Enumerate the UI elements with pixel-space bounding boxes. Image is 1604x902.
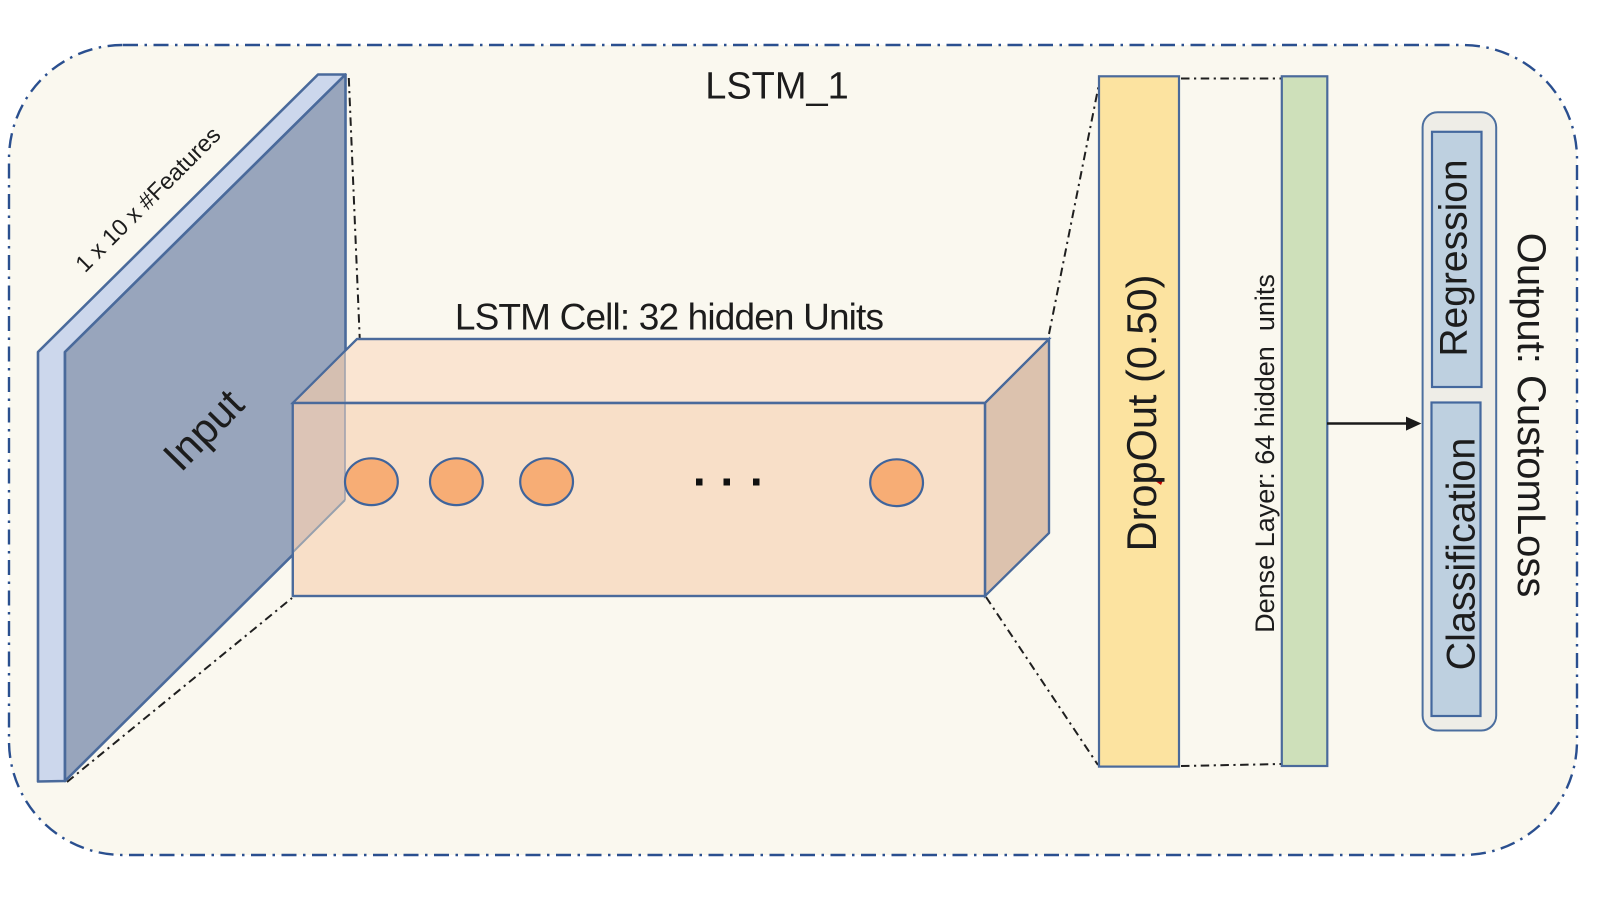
svg-text:Output: CustomLoss: Output: CustomLoss (1509, 233, 1553, 598)
svg-text:LSTM_1: LSTM_1 (705, 65, 849, 107)
svg-text:Regression: Regression (1432, 159, 1475, 356)
svg-text:Dense Layer: 64 hidden units: Dense Layer: 64 hidden units (1250, 274, 1280, 633)
svg-text:LSTM Cell: 32 hidden Units: LSTM Cell: 32 hidden Units (455, 297, 884, 338)
svg-text:DropOut (0.50): DropOut (0.50) (1118, 275, 1165, 552)
svg-text:Classification: Classification (1440, 438, 1484, 671)
